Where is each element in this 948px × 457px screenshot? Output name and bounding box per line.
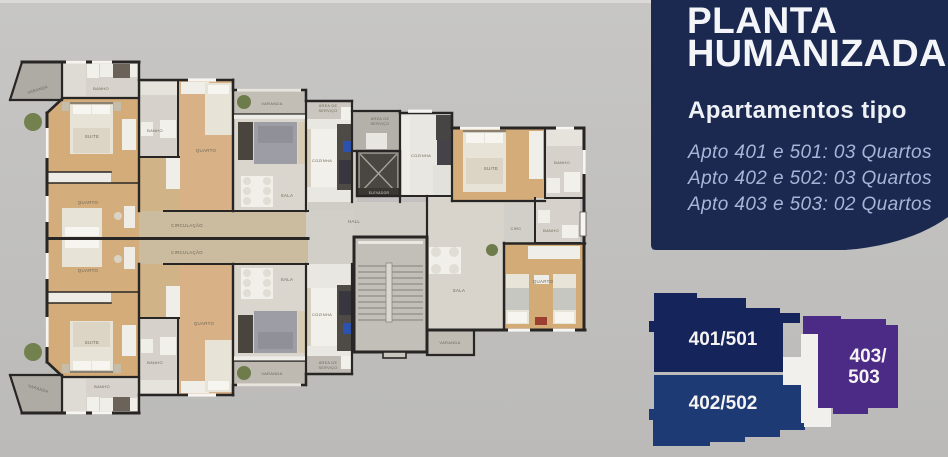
svg-text:QUARTO: QUARTO xyxy=(194,321,215,326)
svg-text:ELEVADOR: ELEVADOR xyxy=(369,191,390,195)
svg-text:VARANDA: VARANDA xyxy=(439,340,460,345)
svg-text:BANHO: BANHO xyxy=(147,128,163,133)
svg-text:503: 503 xyxy=(848,367,880,388)
svg-text:HUMANIZADA: HUMANIZADA xyxy=(687,33,947,75)
svg-text:HALL: HALL xyxy=(348,219,360,224)
svg-text:SERVIÇO: SERVIÇO xyxy=(318,109,337,113)
svg-text:BANHO: BANHO xyxy=(543,228,559,233)
svg-text:SERVIÇO: SERVIÇO xyxy=(370,122,389,126)
svg-text:ÁREA DE: ÁREA DE xyxy=(319,104,338,108)
svg-text:CIRC: CIRC xyxy=(511,226,522,231)
svg-text:SALA: SALA xyxy=(281,277,293,282)
svg-text:BANHO: BANHO xyxy=(93,86,109,91)
svg-text:403/: 403/ xyxy=(850,346,888,367)
svg-text:401/501: 401/501 xyxy=(689,329,758,350)
svg-text:VARANDA: VARANDA xyxy=(261,101,282,106)
svg-text:COZINHA: COZINHA xyxy=(312,158,332,163)
svg-text:SUITE: SUITE xyxy=(85,134,99,139)
svg-text:QUARTO: QUARTO xyxy=(196,148,217,153)
svg-text:SALA: SALA xyxy=(453,288,465,293)
svg-text:CIRCULAÇÃO: CIRCULAÇÃO xyxy=(171,250,203,255)
svg-text:QUARTO: QUARTO xyxy=(78,268,99,273)
svg-text:BANHO: BANHO xyxy=(554,160,570,165)
svg-text:VARANDA: VARANDA xyxy=(261,371,282,376)
svg-text:SERVIÇO: SERVIÇO xyxy=(318,366,337,370)
svg-text:ÁREA DE: ÁREA DE xyxy=(319,361,338,365)
svg-text:SUITE: SUITE xyxy=(484,166,498,171)
svg-text:BANHO: BANHO xyxy=(147,360,163,365)
svg-text:Apto 402 e 502: 03 Quartos: Apto 402 e 502: 03 Quartos xyxy=(687,168,932,189)
svg-text:SUITE: SUITE xyxy=(85,340,99,345)
svg-text:Apartamentos tipo: Apartamentos tipo xyxy=(688,97,907,124)
svg-text:402/502: 402/502 xyxy=(689,393,758,414)
svg-text:SALA: SALA xyxy=(281,193,293,198)
svg-text:Apto 401 e 501: 03 Quartos: Apto 401 e 501: 03 Quartos xyxy=(687,142,932,163)
svg-text:BANHO: BANHO xyxy=(94,384,110,389)
svg-text:Apto 403 e 503: 02 Quartos: Apto 403 e 503: 02 Quartos xyxy=(687,194,932,215)
svg-text:ÁREA DE: ÁREA DE xyxy=(371,117,390,121)
svg-text:COZINHA: COZINHA xyxy=(312,312,332,317)
svg-text:CIRCULAÇÃO: CIRCULAÇÃO xyxy=(171,223,203,228)
svg-text:QUARTO: QUARTO xyxy=(533,279,554,284)
svg-text:COZINHA: COZINHA xyxy=(411,153,431,158)
svg-text:QUARTO: QUARTO xyxy=(78,200,99,205)
